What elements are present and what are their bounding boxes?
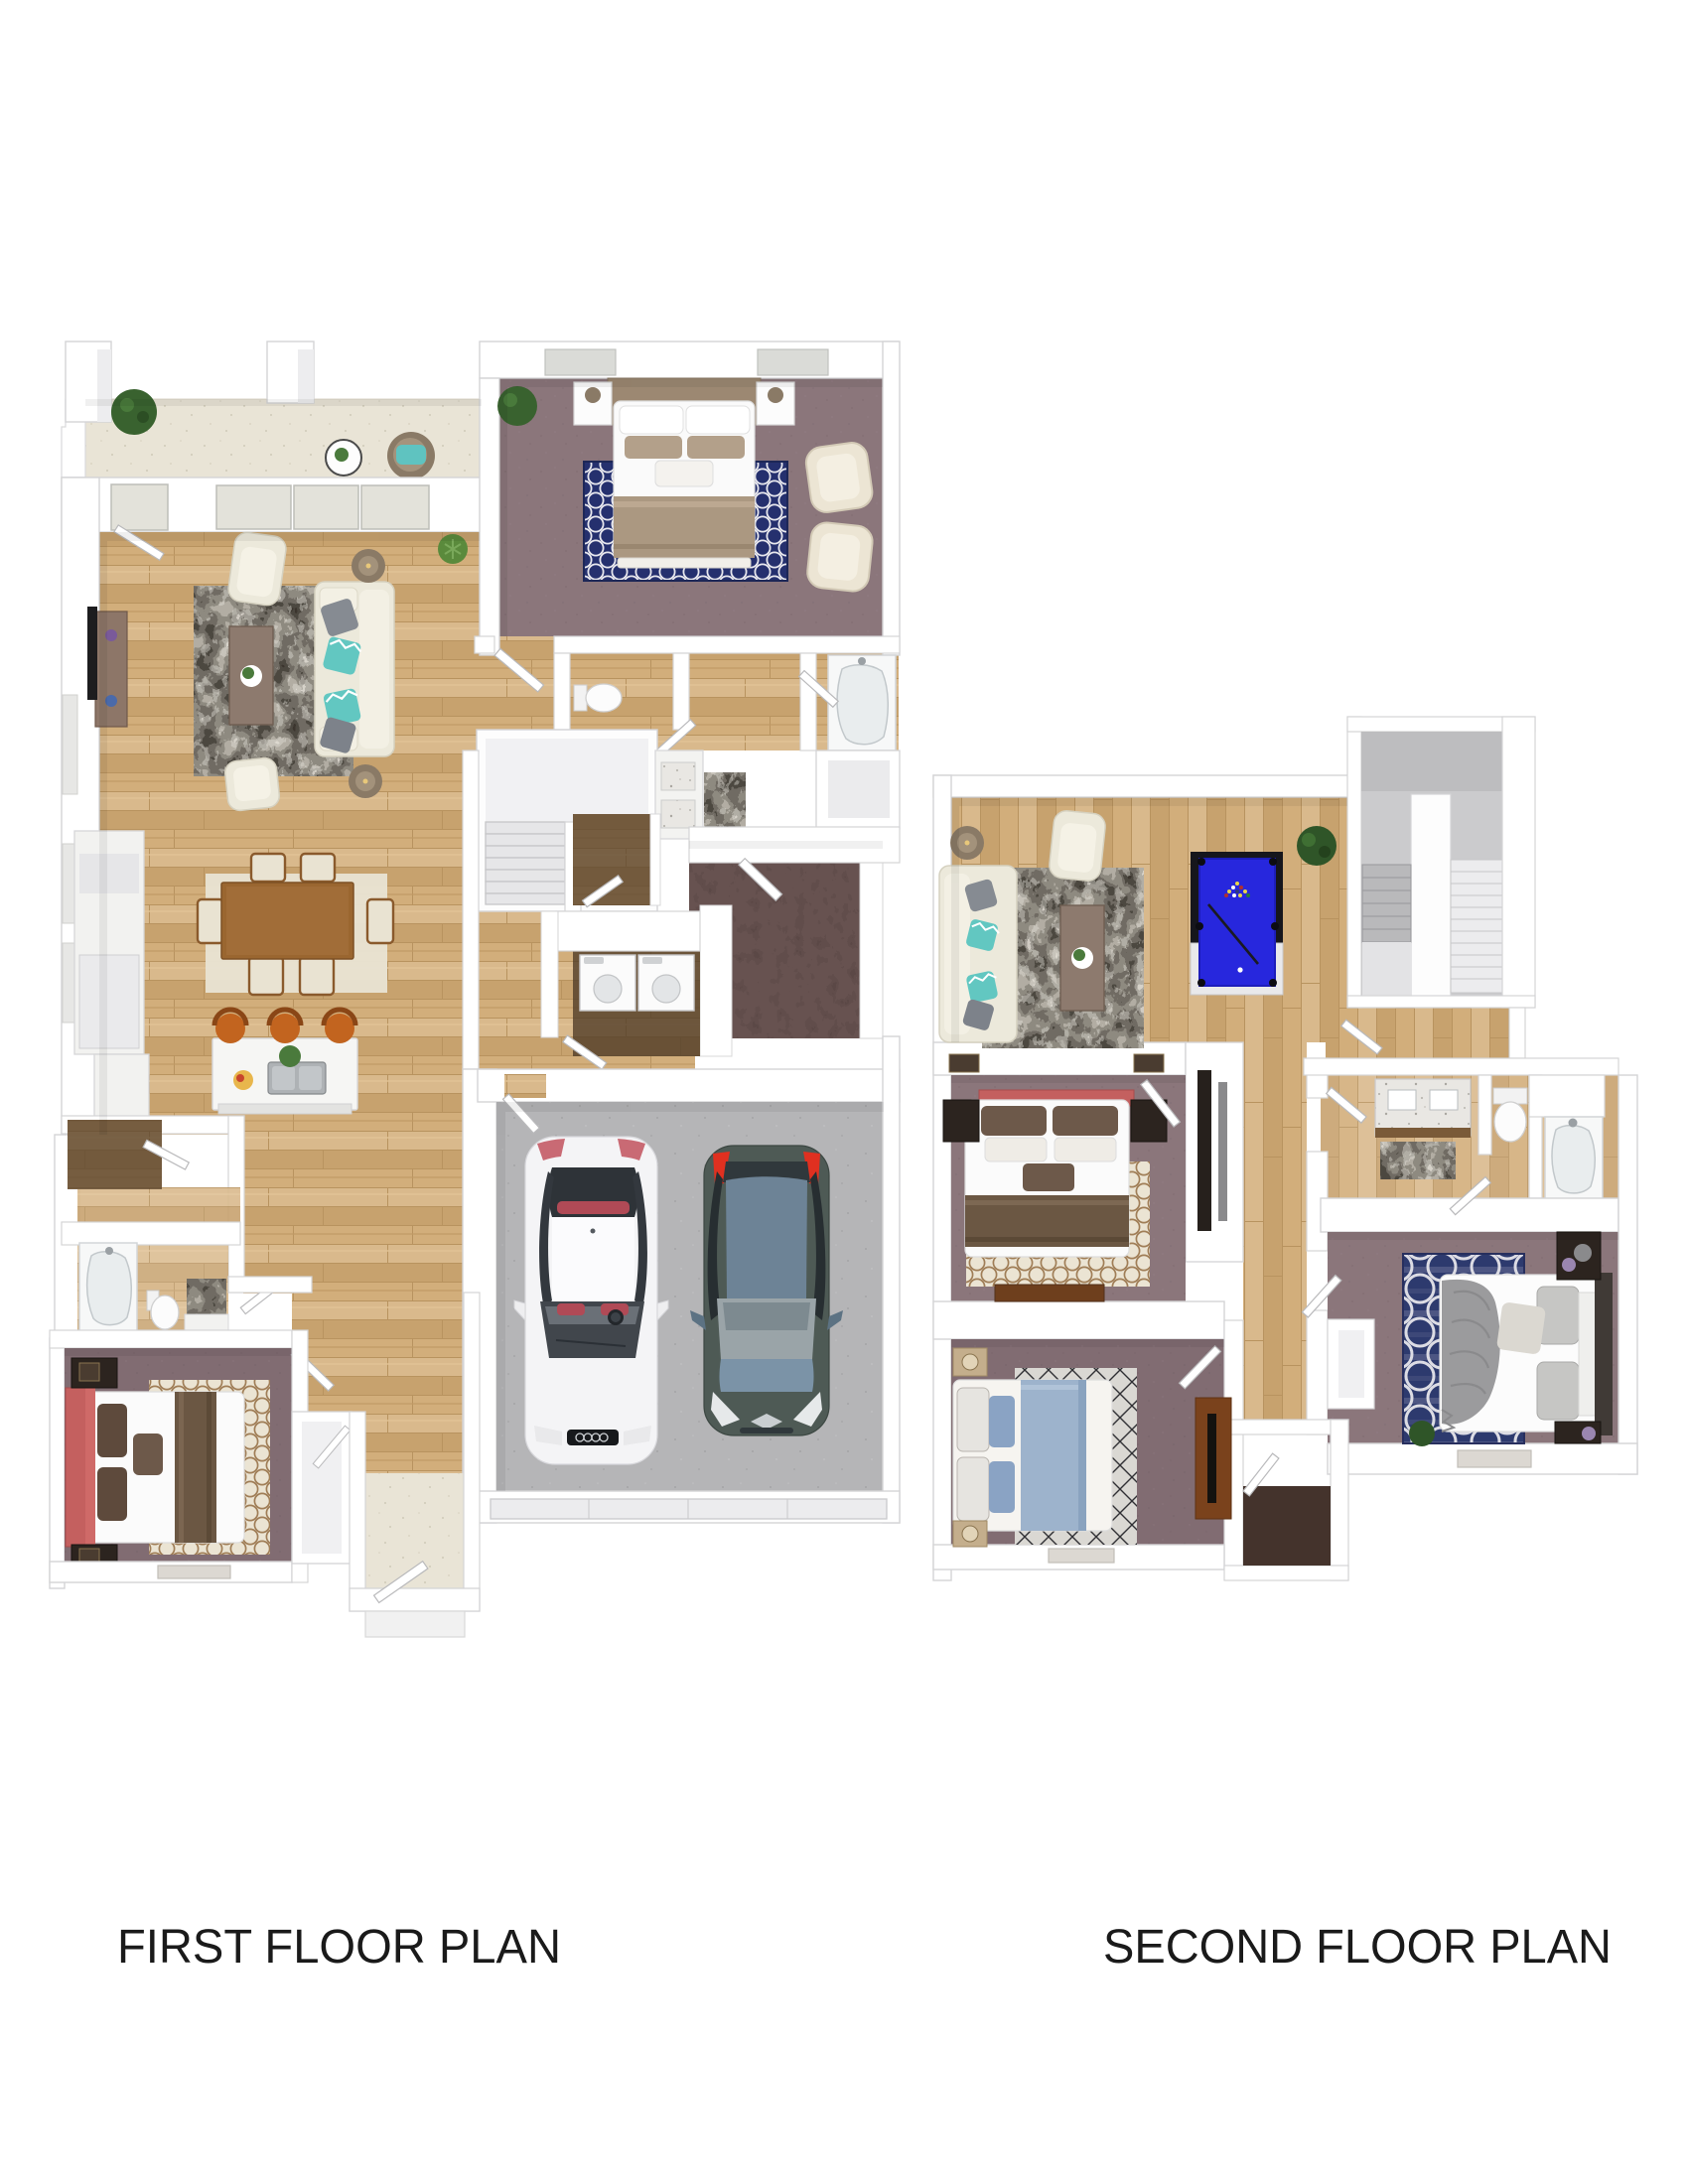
svg-text:SECOND FLOOR PLAN: SECOND FLOOR PLAN bbox=[1103, 1921, 1612, 1974]
svg-text:FIRST FLOOR PLAN: FIRST FLOOR PLAN bbox=[117, 1921, 561, 1974]
